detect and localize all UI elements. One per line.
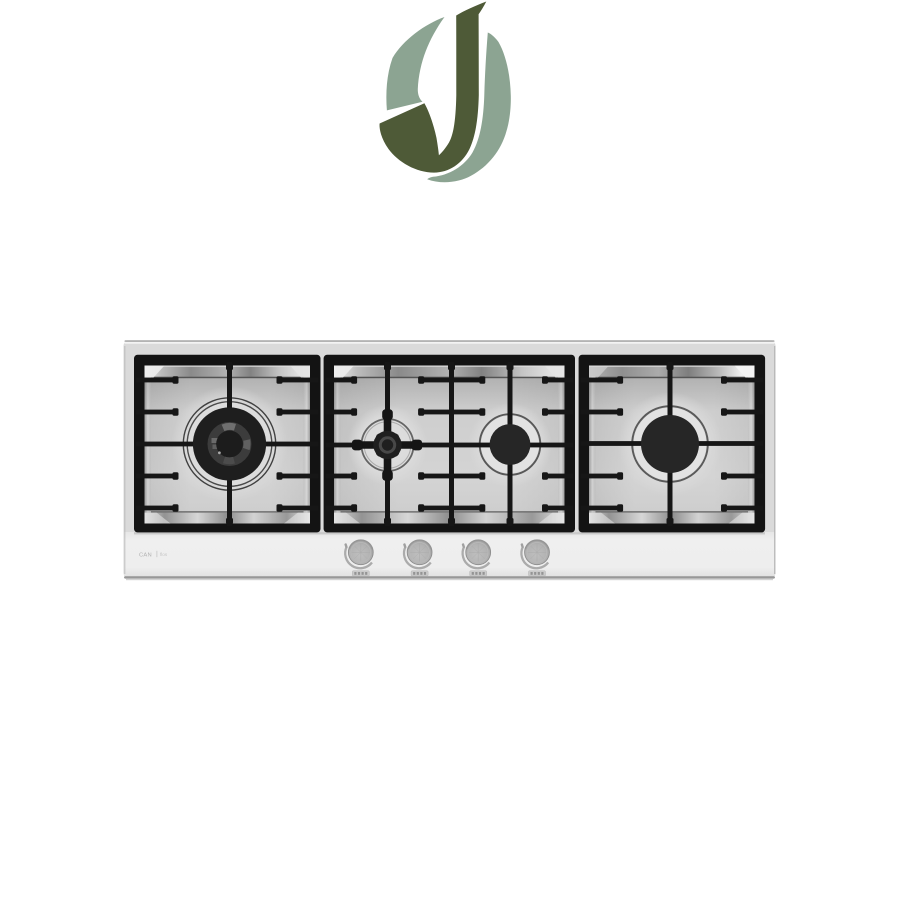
svg-text:flos: flos [160, 552, 168, 557]
svg-text:CAN: CAN [139, 553, 152, 559]
